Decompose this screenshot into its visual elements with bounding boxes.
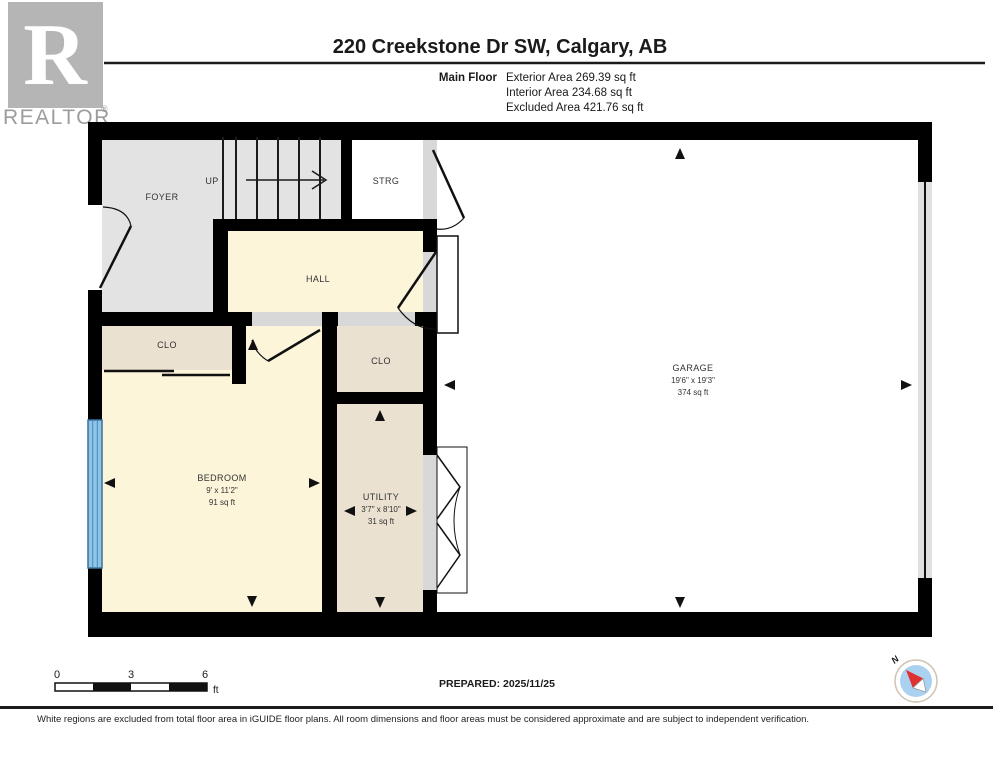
floor-label: Main Floor: [439, 72, 498, 84]
compass-north-label: N: [889, 653, 901, 665]
garage-dims: 19'6" x 19'3": [671, 376, 715, 385]
wall-left-lower: [88, 568, 102, 612]
wall-right-lower: [918, 578, 932, 612]
wall-closet-right-bottom: [322, 392, 437, 404]
bifold-doors: [437, 447, 467, 593]
wall-closet-left-side: [232, 312, 246, 384]
scale-bar-segment: [93, 683, 131, 691]
utility-dims: 3'7" x 8'10": [361, 505, 401, 514]
floor-stats: Main Floor Exterior Area 269.39 sq ft In…: [439, 72, 644, 114]
wall-bottom: [88, 612, 932, 637]
bifold-frame: [437, 447, 467, 593]
foyer-lower-floor: [102, 219, 213, 326]
floorplan-svg: R REALTOR ® 220 Creekstone Dr SW, Calgar…: [0, 0, 993, 768]
wall-stairs-hall: [213, 219, 437, 231]
wall-left-mid: [88, 290, 102, 420]
bedroom-dims: 9' x 11'2": [206, 486, 238, 495]
scale-tick-6: 6: [202, 669, 208, 681]
wall-garage-col-a: [423, 225, 437, 252]
footer-divider-line: [0, 706, 993, 709]
stairs-up-label: UP: [205, 176, 218, 186]
wall-bedroom-utility: [322, 312, 337, 612]
stat-interior-area: Interior Area 234.68 sq ft: [506, 87, 633, 99]
wall-stairs-storage: [341, 140, 352, 231]
utility-area: 31 sq ft: [368, 517, 395, 526]
storage-label: STRG: [373, 176, 400, 186]
utility-label: UTILITY: [363, 492, 399, 502]
closet-left-label: CLO: [157, 340, 177, 350]
bedroom-area: 91 sq ft: [209, 498, 236, 507]
wall-top: [88, 122, 932, 140]
scale-unit-label: ft: [213, 685, 219, 696]
wall-garage-col-c: [423, 590, 437, 612]
wall-hall-left: [213, 219, 228, 326]
wall-garage-col-b: [423, 323, 437, 455]
scale-tick-0: 0: [54, 669, 60, 681]
compass-icon: N: [889, 653, 937, 702]
wall-right-upper: [918, 140, 932, 182]
foyer-stairs-floor: [102, 136, 341, 231]
footer-disclaimer: White regions are excluded from total fl…: [37, 714, 809, 725]
garage-label: GARAGE: [673, 363, 714, 373]
realtor-logo: R REALTOR ®: [3, 2, 111, 129]
garage-step-landing: [437, 236, 458, 333]
scale-bar-segment: [169, 683, 207, 691]
prepared-date: PREPARED: 2025/11/25: [439, 678, 555, 690]
hall-label: HALL: [306, 274, 330, 284]
stat-excluded-area: Excluded Area 421.76 sq ft: [506, 102, 644, 114]
floorplan-page: R REALTOR ® 220 Creekstone Dr SW, Calgar…: [0, 0, 993, 768]
garage-area: 374 sq ft: [678, 388, 709, 397]
realtor-logo-letter: R: [23, 7, 88, 104]
wall-hall-bedroom-a: [88, 312, 252, 326]
bifold-threshold: [423, 455, 437, 590]
window-glass: [88, 420, 102, 568]
wall-left-upper: [88, 122, 102, 205]
bedroom-label: BEDROOM: [197, 473, 246, 483]
bedroom-window: [88, 420, 102, 568]
bedroom-door-threshold: [252, 312, 322, 326]
scale-tick-3: 3: [128, 669, 134, 681]
registered-mark: ®: [101, 104, 108, 114]
scale-bar: 0 3 6 ft: [54, 669, 219, 696]
stat-exterior-area: Exterior Area 269.39 sq ft: [506, 72, 637, 84]
foyer-label: FOYER: [145, 192, 178, 202]
closet-right-label: CLO: [371, 356, 391, 366]
page-title: 220 Creekstone Dr SW, Calgary, AB: [333, 36, 668, 58]
